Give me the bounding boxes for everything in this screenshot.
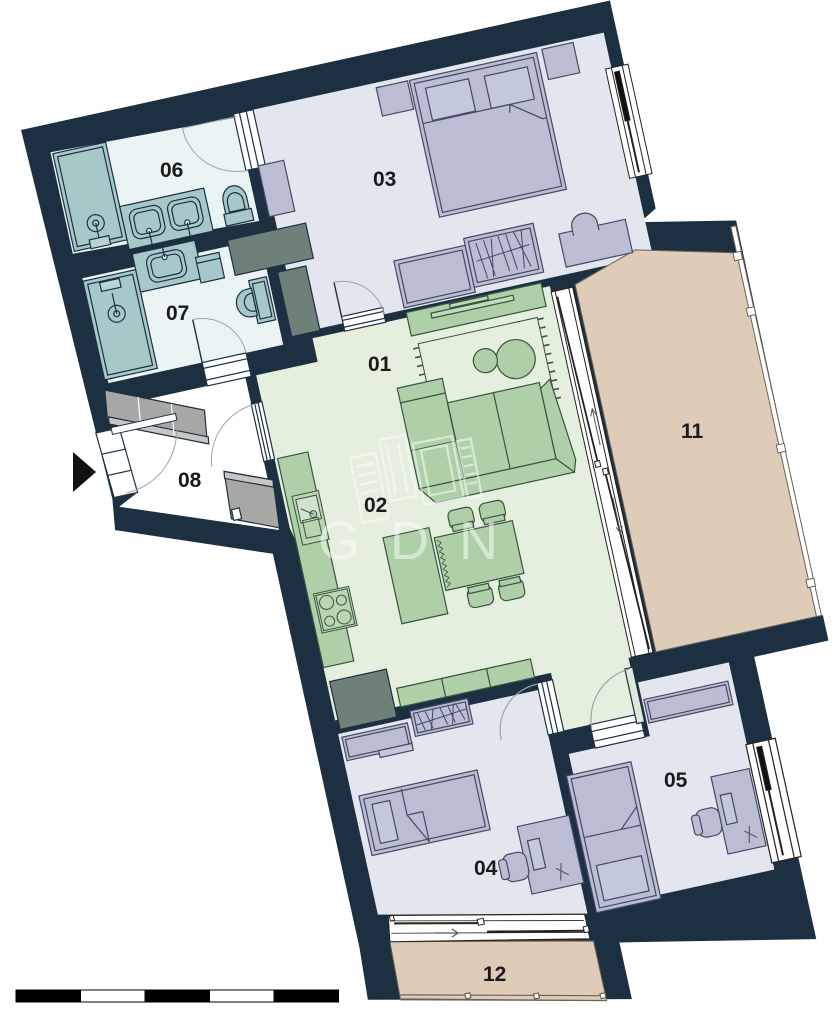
svg-text:03: 03 [373,168,396,191]
svg-text:01: 01 [368,353,392,376]
svg-text:06: 06 [160,159,183,182]
svg-text:07: 07 [166,302,189,325]
svg-text:12: 12 [483,963,506,986]
svg-text:05: 05 [664,769,688,792]
svg-text:08: 08 [178,469,202,492]
svg-text:GDN: GDN [318,511,528,571]
svg-text:11: 11 [681,420,704,443]
svg-text:02: 02 [364,494,387,517]
svg-text:04: 04 [474,857,498,880]
